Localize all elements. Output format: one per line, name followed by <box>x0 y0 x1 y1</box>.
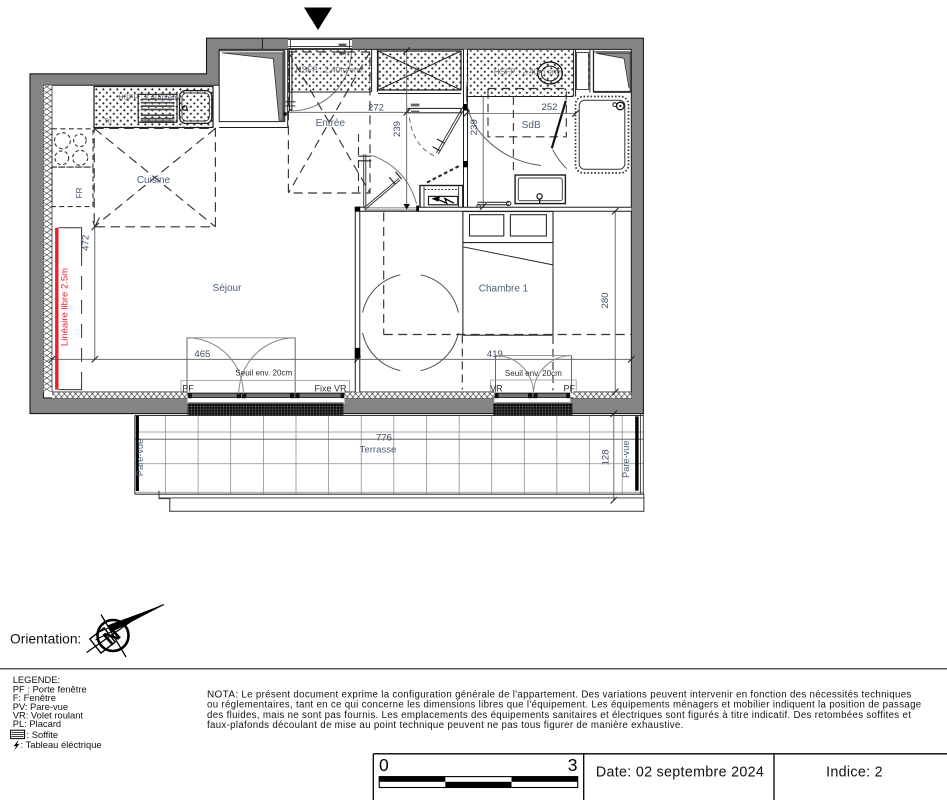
svg-text:Cuisine: Cuisine <box>137 175 171 186</box>
svg-text:776: 776 <box>376 433 392 444</box>
svg-text:3: 3 <box>568 755 578 775</box>
svg-text:Orientation:: Orientation: <box>10 632 81 647</box>
svg-text:252: 252 <box>541 102 557 113</box>
svg-text:Pare-vue: Pare-vue <box>621 441 631 478</box>
svg-text:HSFP : 2.40m env.: HSFP : 2.40m env. <box>494 67 562 76</box>
svg-text:faux-plafonds découlant de mis: faux-plafonds découlant de mise au point… <box>207 720 684 731</box>
svg-text:419: 419 <box>487 349 503 360</box>
svg-text:SdB: SdB <box>522 120 541 131</box>
svg-text:465: 465 <box>194 349 210 360</box>
svg-text:280: 280 <box>600 292 611 308</box>
svg-text:Entrée: Entrée <box>316 118 346 129</box>
svg-text:HSFP : 2.40m env.: HSFP : 2.40m env. <box>296 66 364 75</box>
svg-text:Date: 02 septembre 2024: Date: 02 septembre 2024 <box>596 765 764 781</box>
svg-text:Chambre 1: Chambre 1 <box>479 284 529 295</box>
svg-text:128: 128 <box>601 449 612 465</box>
svg-text:239: 239 <box>469 119 480 135</box>
svg-text:239: 239 <box>392 121 403 137</box>
svg-text:0: 0 <box>379 755 389 775</box>
svg-text:Seuil env. 20cm: Seuil env. 20cm <box>505 369 562 378</box>
svg-text:Indice: 2: Indice: 2 <box>826 765 883 781</box>
svg-text:Fixe VR: Fixe VR <box>314 383 347 393</box>
svg-text:Pare-vue: Pare-vue <box>135 439 145 476</box>
svg-text:: Tableau éléctrique: : Tableau éléctrique <box>21 739 102 750</box>
svg-text:: Soffite: : Soffite <box>27 729 59 740</box>
svg-text:Linéaire libre 2.5m: Linéaire libre 2.5m <box>60 268 71 346</box>
svg-text:FR: FR <box>74 187 84 198</box>
svg-text:HSFP : 2.40m env.: HSFP : 2.40m env. <box>118 93 181 102</box>
svg-text:PF: PF <box>564 384 576 394</box>
svg-text:Tri: Tri <box>104 118 112 125</box>
svg-text:LV: LV <box>141 116 149 125</box>
svg-text:VR: VR <box>490 384 503 394</box>
svg-text:Seuil env. 20cm: Seuil env. 20cm <box>235 368 292 377</box>
svg-text:PL: PL <box>414 65 425 75</box>
svg-text:472: 472 <box>81 235 92 251</box>
svg-text:Séjour: Séjour <box>213 283 243 294</box>
svg-text:Terrasse: Terrasse <box>360 445 397 456</box>
svg-text:PF: PF <box>182 383 194 393</box>
svg-text:272: 272 <box>368 102 384 113</box>
svg-text:PL: Placard: PL: Placard <box>13 718 61 729</box>
